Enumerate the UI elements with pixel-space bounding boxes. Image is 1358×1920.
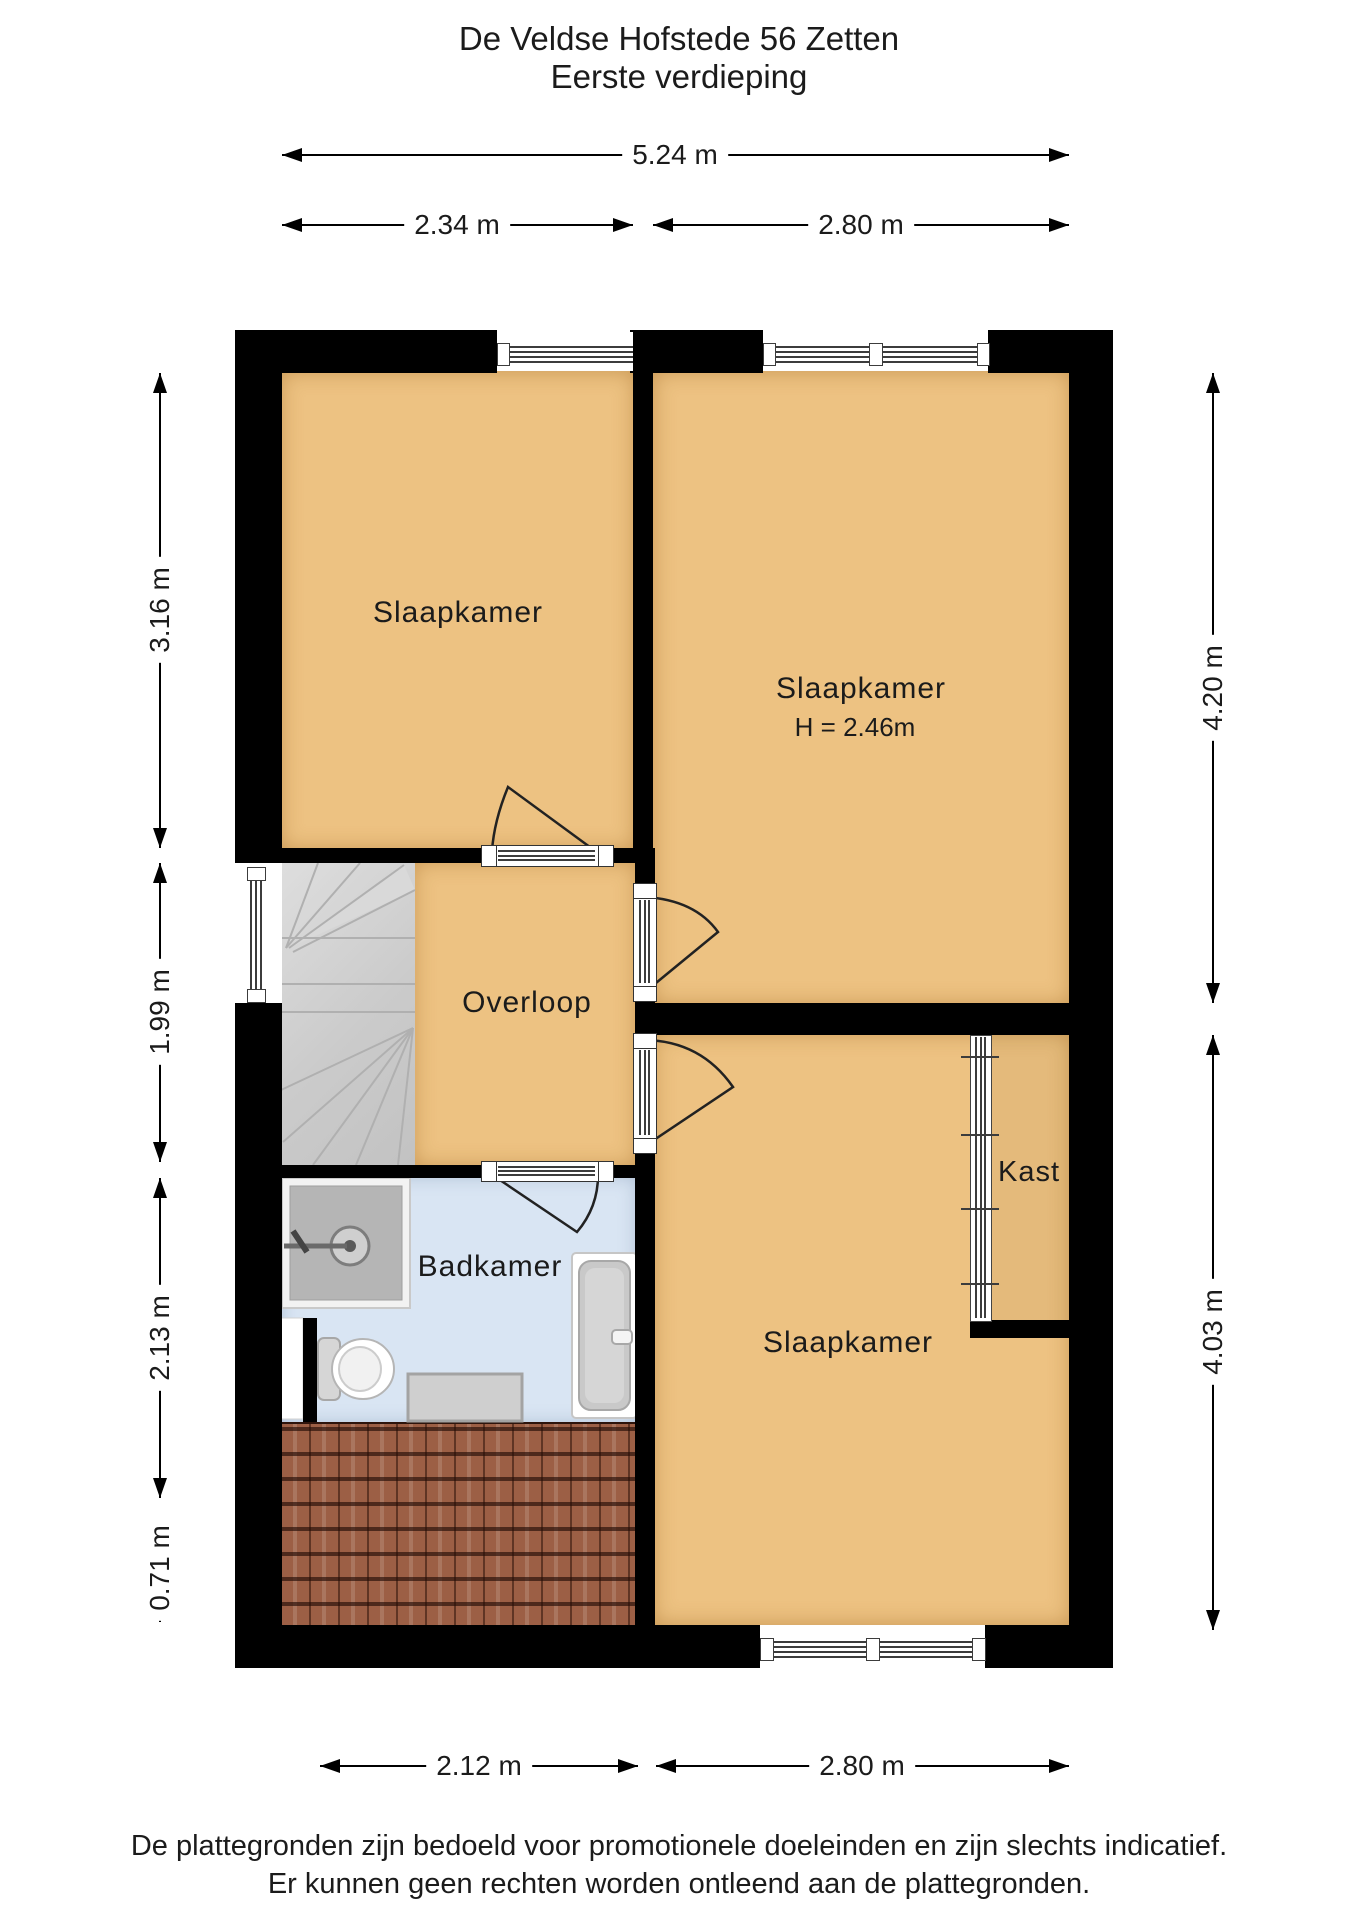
wall-left-upper	[235, 330, 282, 867]
wall-overloop-badkamer-right	[610, 1165, 655, 1178]
wall-bottom-left	[235, 1625, 760, 1668]
room-note-height: H = 2.46m	[705, 712, 1005, 743]
wall-divider-mid-a	[635, 863, 655, 885]
wall-overloop-badkamer-left	[280, 1165, 483, 1178]
wall-bottom-right	[985, 1625, 1113, 1668]
wall-divider-lower	[635, 1178, 655, 1625]
room-label-slaapkamer-topleft: Slaapkamer	[308, 596, 608, 630]
wall-room1-overloop-right	[610, 848, 655, 863]
wall-room2-room3	[635, 1003, 1069, 1035]
room-label-overloop: Overloop	[407, 986, 647, 1020]
knee-wall	[280, 1318, 303, 1419]
wall-room1-overloop-left	[280, 848, 483, 863]
wall-top-middle	[630, 330, 763, 373]
toilet-icon	[318, 1338, 394, 1400]
bath-mat	[408, 1374, 522, 1421]
disclaimer-line2: Er kunnen geen rechten worden ontleend a…	[0, 1868, 1358, 1901]
wall-right	[1069, 330, 1113, 1668]
room-label-slaapkamer-bottom: Slaapkamer	[698, 1326, 998, 1360]
dim-label: 2.12 m	[426, 1750, 532, 1782]
door-arc-slaapkamer-topleft	[492, 787, 598, 853]
dim-label: 2.80 m	[809, 1750, 915, 1782]
door-arc-slaapkamer-bottom	[645, 1040, 733, 1146]
wall-toilet-stub	[303, 1318, 317, 1422]
shower-icon	[282, 1178, 410, 1308]
floorplan-page: De Veldse Hofstede 56 Zetten Eerste verd…	[0, 0, 1358, 1920]
wall-divider-top	[633, 373, 653, 863]
room-label-slaapkamer-topright: Slaapkamer	[711, 672, 1011, 706]
disclaimer-line1: De plattegronden zijn bedoeld voor promo…	[0, 1830, 1358, 1863]
room-label-kast: Kast	[969, 1156, 1089, 1189]
wall-left-lower	[235, 1000, 282, 1668]
staircase-treads	[280, 863, 415, 1165]
room-label-badkamer: Badkamer	[370, 1250, 610, 1284]
